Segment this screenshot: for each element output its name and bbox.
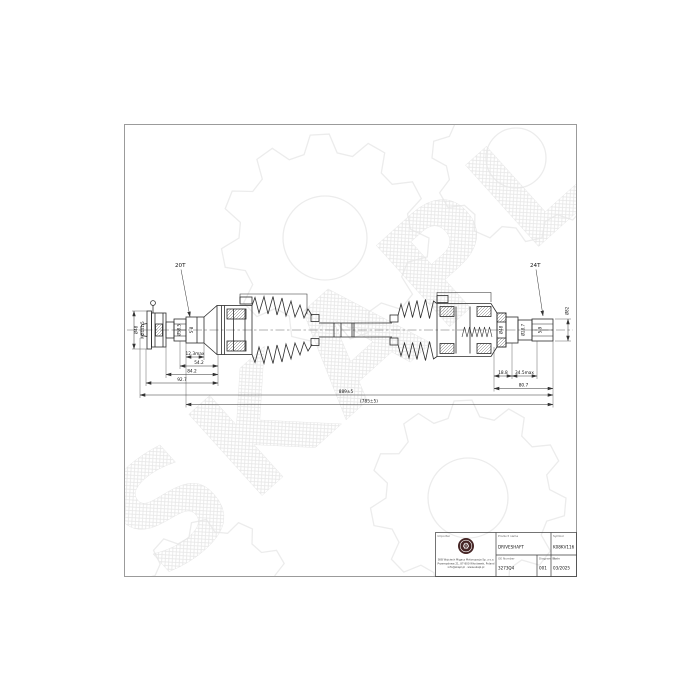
- dim-right-spline-note: 5-9: [538, 326, 543, 333]
- diagram-no-value: 001: [539, 566, 547, 571]
- watermark-gear-hub: [428, 458, 508, 538]
- symbol-label: Symbol: [553, 534, 564, 538]
- dim-right-1: 34.5max: [515, 370, 534, 376]
- dim-left-0: 12.3max: [186, 351, 205, 357]
- product-name-label: Product name: [498, 534, 518, 538]
- dim-compressed-length: (785±5): [360, 398, 378, 404]
- dim-left-spline-note: 5-8: [189, 326, 194, 333]
- label-left-spline-teeth: 20T: [175, 263, 186, 269]
- dim-overall-length: 889±5: [339, 389, 354, 395]
- gear-icon: ⚙: [462, 542, 470, 552]
- oe-number-value: 3273Q4: [498, 566, 515, 571]
- importer-label: Importer: [438, 534, 451, 538]
- drawing-page: SKAPL: [0, 0, 700, 700]
- title-block: Importer Product name Symbol OE Number D…: [436, 533, 577, 577]
- product-name-value: DRIVESHAFT: [498, 545, 524, 550]
- date-label: Date: [553, 557, 560, 561]
- importer-address-line1: SKB Wojciech Migacz Motoryzacja Sp. z o.…: [438, 558, 495, 562]
- label-right-spline-teeth: 24T: [530, 263, 541, 269]
- watermark-text: SKAPL: [72, 82, 631, 610]
- technical-drawing-sheet: SKAPL: [0, 0, 700, 700]
- dim-left-2: 84.2: [187, 368, 197, 374]
- importer-logo-icon: ⚙: [458, 538, 474, 554]
- left-teeth-leader: [181, 270, 190, 318]
- oe-number-label: OE Number: [498, 557, 515, 561]
- dim-left-spline-diameter: Ø58.5: [177, 324, 182, 337]
- date-value: 03/2025: [553, 566, 570, 571]
- dim-left-end-diameter: Ø48: [134, 325, 139, 334]
- dim-right-seal-diameter: Ø28.7: [521, 324, 526, 337]
- importer-address-line3: info@skapl.pl · www.skapl.pl: [448, 565, 485, 569]
- dim-right-joint-diameter: Ø48: [499, 325, 504, 334]
- symbol-value: K08KV116: [553, 545, 575, 550]
- dim-left-thread: M24x1.5: [140, 321, 145, 339]
- dim-right-0: 18.8: [498, 370, 508, 376]
- dim-right-end-diameter: Ø82: [565, 306, 570, 315]
- dim-left-1: 54.2: [194, 360, 204, 366]
- importer-address-line2: Przemysłowa 21, 87-800 Włocławek, Poland: [438, 561, 495, 565]
- dim-left-3: 92.7: [177, 377, 187, 383]
- watermark: SKAPL: [72, 75, 631, 671]
- dim-right-2: 80.7: [519, 382, 529, 388]
